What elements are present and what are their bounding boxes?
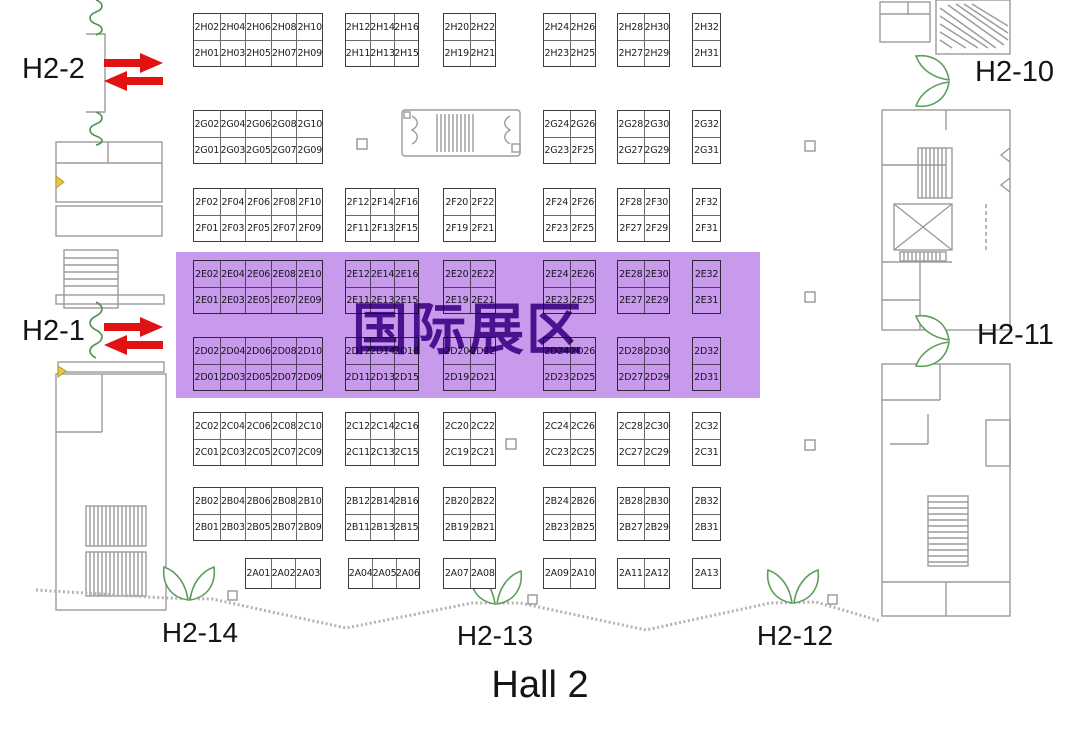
booth-2F04: 2F04 [220,189,246,215]
booth-2G07: 2G07 [271,137,297,163]
booth-2B07: 2B07 [271,514,297,540]
booth-2F21: 2F21 [470,215,496,241]
booth-2F09: 2F09 [296,215,322,241]
booth-2C09: 2C09 [296,439,322,465]
booth-2H13: 2H13 [370,40,394,66]
booth-2C01: 2C01 [194,439,220,465]
booth-2H31: 2H31 [693,40,720,66]
booth-block-C-4: 2C282C302C272C29 [617,412,670,466]
booth-2F26: 2F26 [570,189,596,215]
booth-2C25: 2C25 [570,439,596,465]
booth-2H04: 2H04 [220,14,246,40]
booth-block-A-4: 2A112A12 [617,558,670,589]
booth-block-F-0: 2F022F042F062F082F102F012F032F052F072F09 [193,188,323,242]
booth-2F05: 2F05 [245,215,271,241]
booth-2B14: 2B14 [370,488,394,514]
booth-2H22: 2H22 [470,14,496,40]
booth-2F11: 2F11 [346,215,370,241]
booth-2G03: 2G03 [220,137,246,163]
international-zone-highlight: 国际展区 [176,252,760,398]
booth-block-B-5: 2B322B31 [692,487,721,541]
booth-2H08: 2H08 [271,14,297,40]
booth-2B23: 2B23 [544,514,570,540]
gate-label-h2-10: H2-10 [975,56,1054,89]
booth-block-B-4: 2B282B302B272B29 [617,487,670,541]
booth-2G10: 2G10 [296,111,322,137]
booth-2C12: 2C12 [346,413,370,439]
gate-label-h2-12: H2-12 [745,620,845,652]
booth-2C19: 2C19 [444,439,470,465]
booth-2B10: 2B10 [296,488,322,514]
gate-label-h2-1: H2-1 [22,315,85,348]
booth-2H03: 2H03 [220,40,246,66]
booth-2F07: 2F07 [271,215,297,241]
booth-2B05: 2B05 [245,514,271,540]
booth-2F02: 2F02 [194,189,220,215]
booth-2F10: 2F10 [296,189,322,215]
booth-2F08: 2F08 [271,189,297,215]
booth-2C13: 2C13 [370,439,394,465]
booth-2B32: 2B32 [693,488,720,514]
booth-2B21: 2B21 [470,514,496,540]
booth-2G30: 2G30 [644,111,670,137]
booth-block-F-3: 2F242F262F232F25 [543,188,596,242]
booth-2H19: 2H19 [444,40,470,66]
booth-2B08: 2B08 [271,488,297,514]
booth-2G32: 2G32 [693,111,720,137]
booth-2B30: 2B30 [644,488,670,514]
gate-label-h2-2: H2-2 [22,53,85,86]
booth-2F27: 2F27 [618,215,644,241]
booth-2F16: 2F16 [394,189,418,215]
booth-2C24: 2C24 [544,413,570,439]
booth-2C32: 2C32 [693,413,720,439]
booth-block-F-5: 2F322F31 [692,188,721,242]
booth-2A13: 2A13 [693,559,720,588]
booth-2C15: 2C15 [394,439,418,465]
booth-2C21: 2C21 [470,439,496,465]
booth-block-F-2: 2F202F222F192F21 [443,188,496,242]
booth-2F14: 2F14 [370,189,394,215]
booth-2C29: 2C29 [644,439,670,465]
booth-block-A-0: 2A012A022A03 [245,558,321,589]
booth-2H15: 2H15 [394,40,418,66]
booth-2F28: 2F28 [618,189,644,215]
booth-block-C-3: 2C242C262C232C25 [543,412,596,466]
booth-block-H-0: 2H022H042H062H082H102H012H032H052H072H09 [193,13,323,67]
booth-2B13: 2B13 [370,514,394,540]
booth-2F23: 2F23 [544,215,570,241]
booth-2B22: 2B22 [470,488,496,514]
booth-2B24: 2B24 [544,488,570,514]
gate-label-h2-11: H2-11 [977,319,1054,352]
booth-block-A-3: 2A092A10 [543,558,596,589]
booth-2F19: 2F19 [444,215,470,241]
booth-2F12: 2F12 [346,189,370,215]
booth-2B28: 2B28 [618,488,644,514]
booth-2H27: 2H27 [618,40,644,66]
booth-block-C-5: 2C322C31 [692,412,721,466]
booth-2G01: 2G01 [194,137,220,163]
booth-block-C-1: 2C122C142C162C112C132C15 [345,412,419,466]
booth-2C02: 2C02 [194,413,220,439]
booth-2F24: 2F24 [544,189,570,215]
booth-2B29: 2B29 [644,514,670,540]
booth-2H09: 2H09 [296,40,322,66]
booth-block-A-1: 2A042A052A06 [348,558,420,589]
booth-2B03: 2B03 [220,514,246,540]
booth-2F30: 2F30 [644,189,670,215]
booth-2H10: 2H10 [296,14,322,40]
booth-2B16: 2B16 [394,488,418,514]
booth-2C31: 2C31 [693,439,720,465]
booth-2C11: 2C11 [346,439,370,465]
booth-2G24: 2G24 [544,111,570,137]
booth-2A01: 2A01 [246,559,271,588]
booth-2H02: 2H02 [194,14,220,40]
booth-2C30: 2C30 [644,413,670,439]
booth-2C05: 2C05 [245,439,271,465]
booth-2H01: 2H01 [194,40,220,66]
booth-block-H-2: 2H202H222H192H21 [443,13,496,67]
booth-2B15: 2B15 [394,514,418,540]
booth-2H26: 2H26 [570,14,596,40]
booth-2B27: 2B27 [618,514,644,540]
booth-2F25: 2F25 [570,137,596,163]
booth-2C07: 2C07 [271,439,297,465]
booth-block-G-3: 2G242G262G232F25 [543,110,596,164]
booth-2F13: 2F13 [370,215,394,241]
booth-2H25: 2H25 [570,40,596,66]
booth-2H06: 2H06 [245,14,271,40]
booth-2B12: 2B12 [346,488,370,514]
booth-2C20: 2C20 [444,413,470,439]
booth-block-A-2: 2A072A08 [443,558,496,589]
booth-2G02: 2G02 [194,111,220,137]
booth-2B01: 2B01 [194,514,220,540]
booth-2B26: 2B26 [570,488,596,514]
booth-2G29: 2G29 [644,137,670,163]
booth-block-A-5: 2A13 [692,558,721,589]
booth-2B06: 2B06 [245,488,271,514]
booth-block-B-1: 2B122B142B162B112B132B15 [345,487,419,541]
booth-block-G-4: 2G282G302G272G29 [617,110,670,164]
booth-2G09: 2G09 [296,137,322,163]
booth-block-H-5: 2H322H31 [692,13,721,67]
booth-2G28: 2G28 [618,111,644,137]
booth-block-H-1: 2H122H142H162H112H132H15 [345,13,419,67]
booth-block-G-5: 2G322G31 [692,110,721,164]
booth-2A04: 2A04 [349,559,372,588]
booth-2C14: 2C14 [370,413,394,439]
booth-2G05: 2G05 [245,137,271,163]
booth-2G04: 2G04 [220,111,246,137]
booth-2A07: 2A07 [444,559,470,588]
gate-label-h2-13: H2-13 [445,620,545,652]
booth-block-B-0: 2B022B042B062B082B102B012B032B052B072B09 [193,487,323,541]
booth-2H23: 2H23 [544,40,570,66]
booth-2A02: 2A02 [271,559,296,588]
booth-2F03: 2F03 [220,215,246,241]
booth-2H28: 2H28 [618,14,644,40]
gate-label-h2-14: H2-14 [150,617,250,649]
booth-2C27: 2C27 [618,439,644,465]
booth-block-H-4: 2H282H302H272H29 [617,13,670,67]
booth-block-C-0: 2C022C042C062C082C102C012C032C052C072C09 [193,412,323,466]
booth-2G23: 2G23 [544,137,570,163]
booth-2C04: 2C04 [220,413,246,439]
booth-2H05: 2H05 [245,40,271,66]
booth-2A06: 2A06 [396,559,419,588]
booth-2A11: 2A11 [618,559,644,588]
booth-2C08: 2C08 [271,413,297,439]
booth-2B31: 2B31 [693,514,720,540]
booth-block-B-3: 2B242B262B232B25 [543,487,596,541]
booth-2H21: 2H21 [470,40,496,66]
booth-2H29: 2H29 [644,40,670,66]
booth-2B09: 2B09 [296,514,322,540]
booth-2H16: 2H16 [394,14,418,40]
booth-2F22: 2F22 [470,189,496,215]
booth-2B04: 2B04 [220,488,246,514]
international-zone-label: 国际展区 [352,285,584,366]
booth-block-B-2: 2B202B222B192B21 [443,487,496,541]
booth-2A05: 2A05 [372,559,395,588]
booth-2B02: 2B02 [194,488,220,514]
booth-2F25: 2F25 [570,215,596,241]
booth-block-H-3: 2H242H262H232H25 [543,13,596,67]
booth-2B19: 2B19 [444,514,470,540]
booth-block-C-2: 2C202C222C192C21 [443,412,496,466]
booth-2C28: 2C28 [618,413,644,439]
booth-2F32: 2F32 [693,189,720,215]
booth-2A12: 2A12 [644,559,670,588]
booth-2F06: 2F06 [245,189,271,215]
booth-2G06: 2G06 [245,111,271,137]
booth-2H14: 2H14 [370,14,394,40]
booth-2A09: 2A09 [544,559,570,588]
booth-2B11: 2B11 [346,514,370,540]
booth-2G26: 2G26 [570,111,596,137]
booth-2B20: 2B20 [444,488,470,514]
booth-2F15: 2F15 [394,215,418,241]
booth-2H11: 2H11 [346,40,370,66]
booth-2H12: 2H12 [346,14,370,40]
booth-2C23: 2C23 [544,439,570,465]
booth-block-G-0: 2G022G042G062G082G102G012G032G052G072G09 [193,110,323,164]
hall-title: Hall 2 [390,664,690,707]
booth-2H24: 2H24 [544,14,570,40]
booth-2G31: 2G31 [693,137,720,163]
booth-block-F-4: 2F282F302F272F29 [617,188,670,242]
booth-2F20: 2F20 [444,189,470,215]
booth-2G08: 2G08 [271,111,297,137]
booth-2B25: 2B25 [570,514,596,540]
booth-2F31: 2F31 [693,215,720,241]
booth-2H32: 2H32 [693,14,720,40]
booth-2C26: 2C26 [570,413,596,439]
booth-2C03: 2C03 [220,439,246,465]
booth-2A08: 2A08 [470,559,496,588]
booth-2F01: 2F01 [194,215,220,241]
booth-2A03: 2A03 [295,559,320,588]
booth-block-F-1: 2F122F142F162F112F132F15 [345,188,419,242]
booth-2C06: 2C06 [245,413,271,439]
booth-2A10: 2A10 [570,559,596,588]
booth-2C22: 2C22 [470,413,496,439]
booth-2H30: 2H30 [644,14,670,40]
booth-2C10: 2C10 [296,413,322,439]
booth-2F29: 2F29 [644,215,670,241]
booth-2H20: 2H20 [444,14,470,40]
booth-2C16: 2C16 [394,413,418,439]
booth-2G27: 2G27 [618,137,644,163]
booth-2H07: 2H07 [271,40,297,66]
